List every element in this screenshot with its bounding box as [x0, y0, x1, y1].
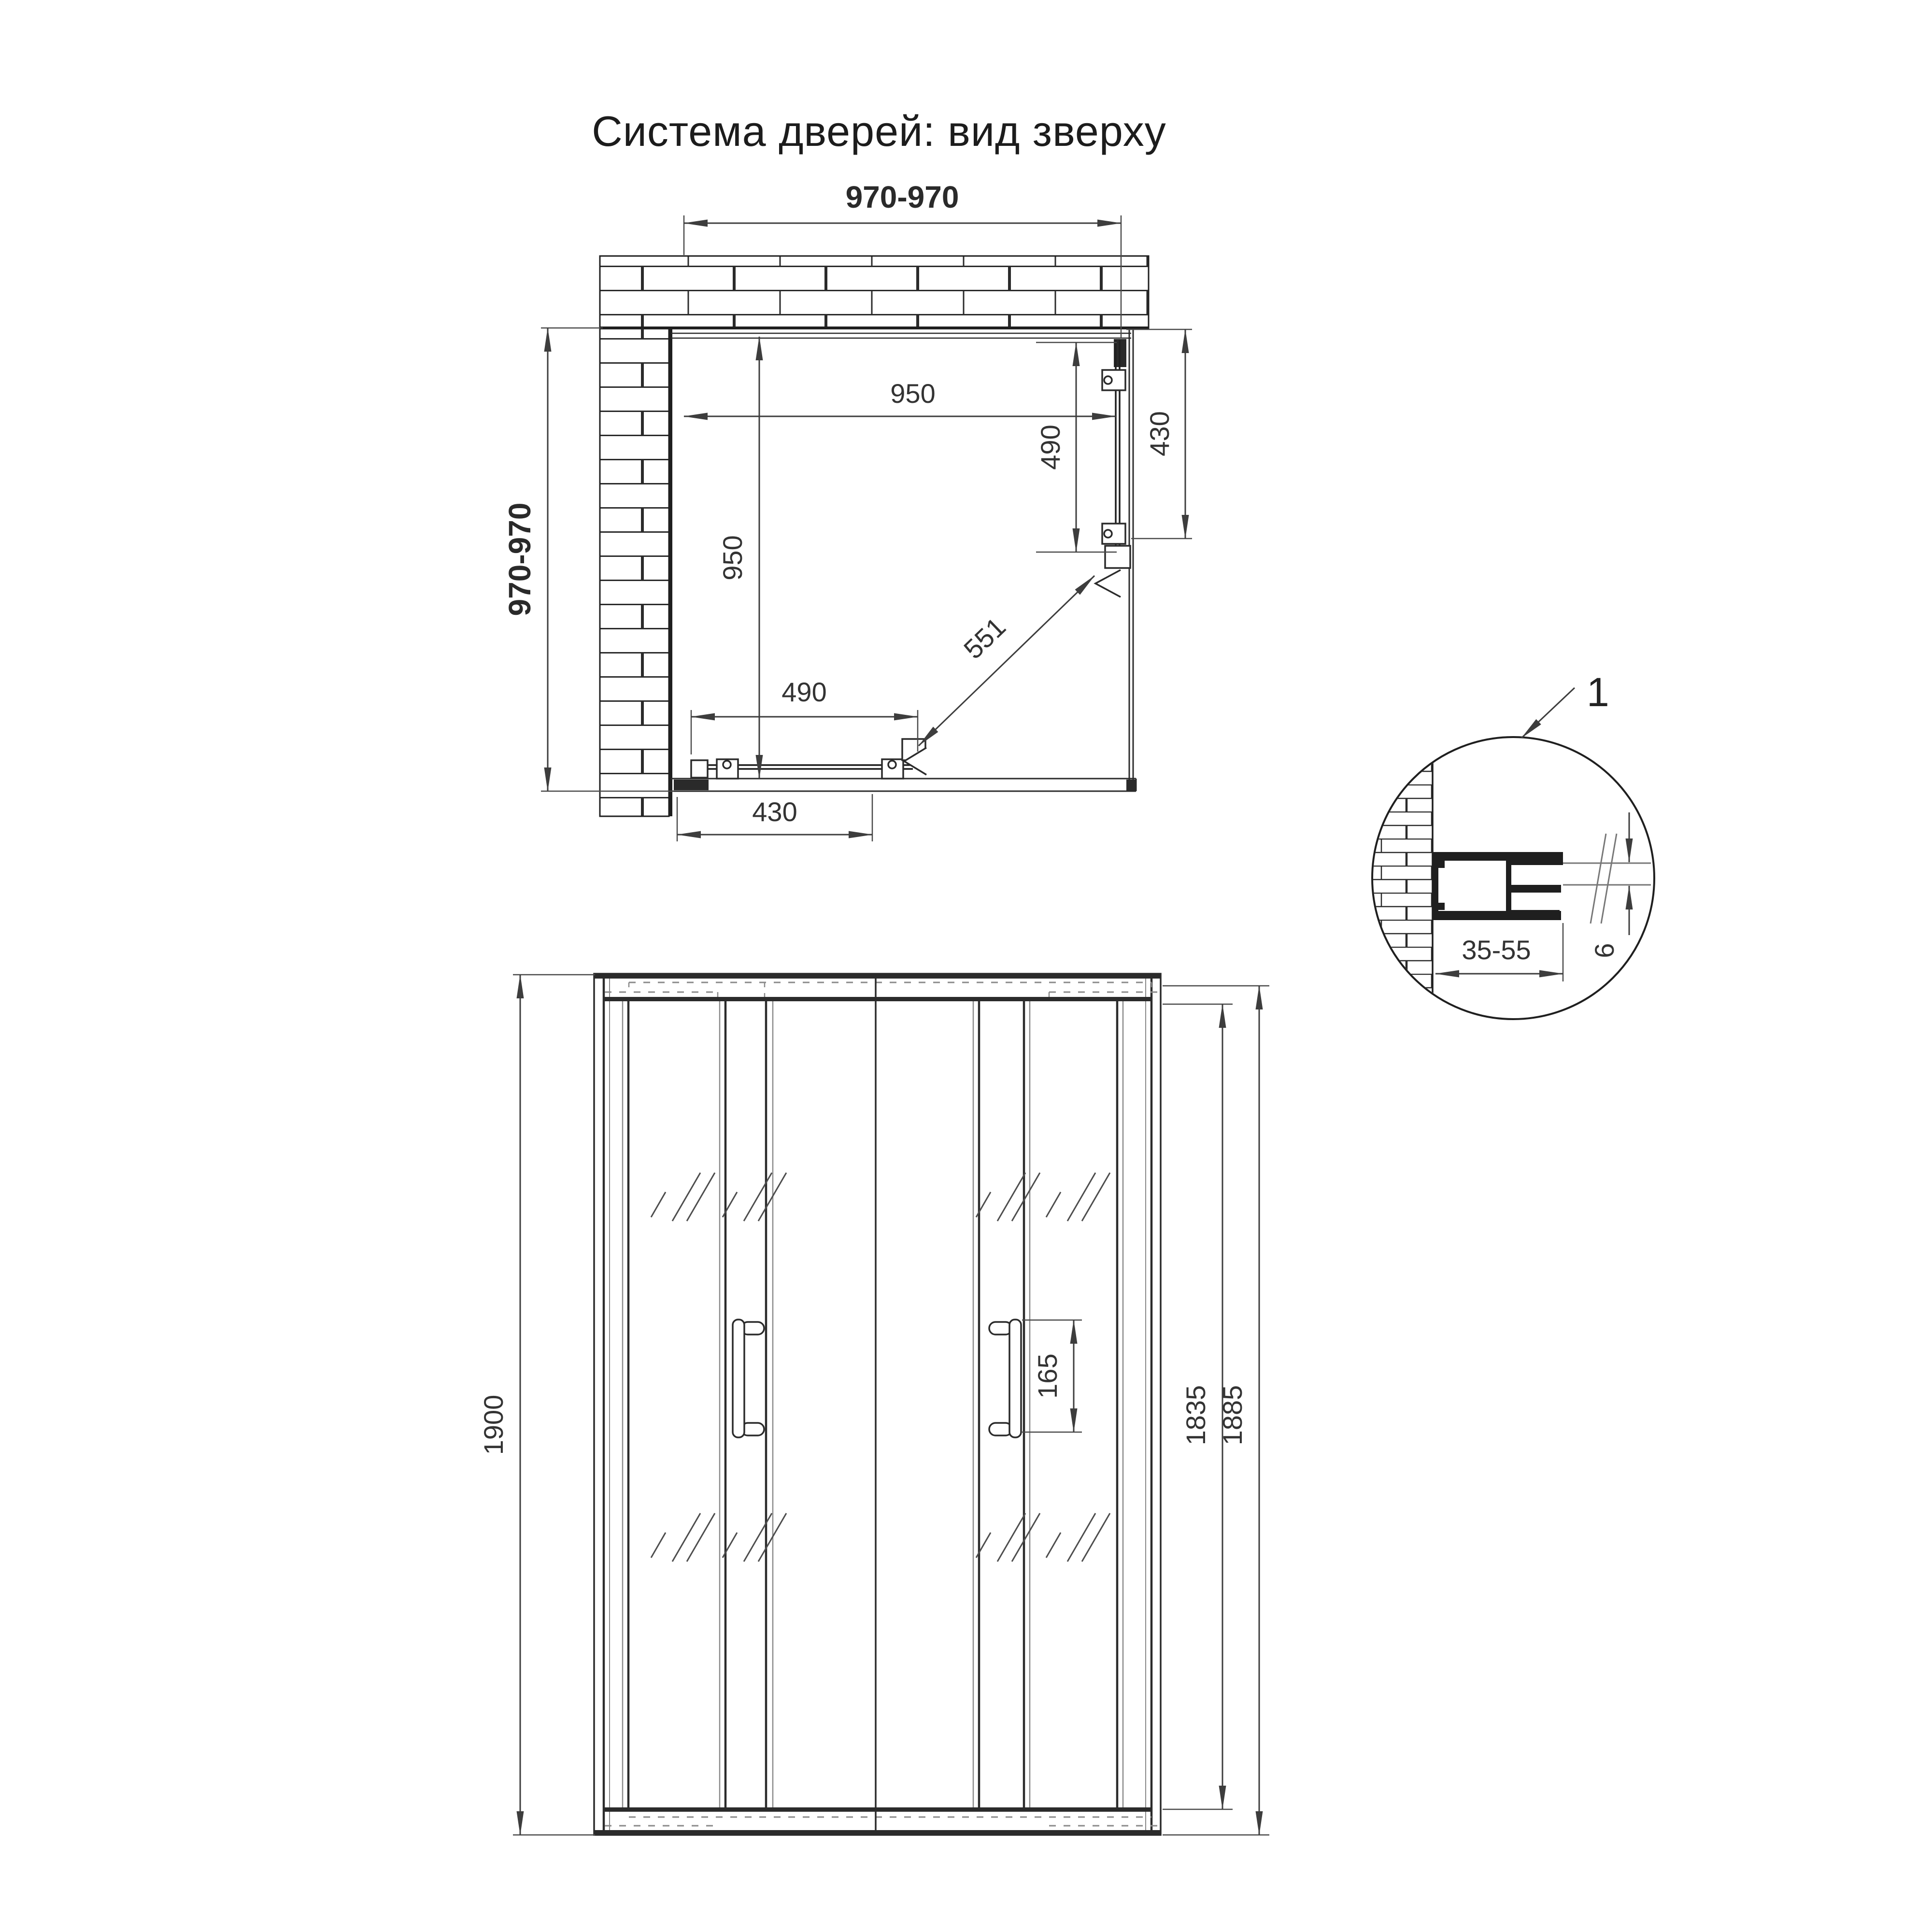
dim-plan-diagonal-entry: 551	[919, 576, 1094, 746]
page-title: Система дверей: вид зверху	[592, 107, 1166, 155]
front-bottom-track	[604, 1807, 1158, 1830]
dimension-label: 551	[958, 611, 1011, 665]
roller-wheel-icon	[1104, 376, 1112, 384]
dimension-label: 1885	[1217, 1385, 1248, 1446]
dimension-label: 950	[717, 535, 748, 580]
door-end-clamp	[691, 760, 708, 778]
profile-hook	[1438, 861, 1445, 868]
dimension-label: 165	[1032, 1353, 1063, 1398]
dimension-label: 35-55	[1462, 935, 1531, 965]
front-view: 165 1900 1835 1885	[478, 974, 1269, 1835]
plan-front-sliding-door	[691, 739, 926, 779]
dimension-label: 970-970	[502, 503, 537, 616]
profile-hook	[1438, 903, 1445, 910]
dimension-label: 490	[1035, 425, 1065, 469]
detail-view: 1 35-55	[1362, 669, 1654, 1024]
glass-hatch-icon	[723, 1173, 786, 1221]
left-door-handle	[733, 1320, 764, 1437]
dimension-label: 1900	[478, 1395, 509, 1455]
rail-web	[1506, 861, 1511, 918]
plan-view: 970-970 970-970 950 950 490	[502, 180, 1192, 841]
dim-front-handle-spacing: 165	[1022, 1320, 1082, 1432]
dimension-label: 1835	[1180, 1385, 1211, 1446]
glass-hatch-icon	[723, 1513, 786, 1562]
glass-hatch-icon	[651, 1513, 715, 1562]
dim-front-total-height: 1900	[478, 975, 595, 1835]
roller-wheel-icon	[1104, 530, 1112, 538]
dimension-label: 970-970	[846, 180, 959, 214]
roller-wheel-icon	[723, 761, 731, 768]
door-end-clip	[1105, 546, 1130, 568]
dimension-line	[919, 576, 1094, 746]
dim-front-frame-height: 1885	[1163, 986, 1269, 1835]
plan-left-brick-wall	[600, 328, 671, 816]
brick-wall-top	[600, 256, 1149, 328]
rail-bottom-bar	[1511, 910, 1560, 916]
plan-bottom-track	[671, 779, 1136, 791]
plan-top-brick-wall	[600, 256, 1149, 328]
dim-plan-side-door-travel: 430	[1126, 329, 1192, 539]
dimension-label: 6	[1589, 943, 1619, 958]
front-top-rail-bar	[604, 997, 1151, 1001]
callout-label: 1	[1587, 669, 1609, 715]
glass-hatch-icon	[1046, 1173, 1110, 1221]
profile-top-arm	[1433, 852, 1563, 861]
dimension-label: 950	[890, 378, 935, 409]
rail-top-bar	[1506, 861, 1563, 865]
dim-plan-front-door-travel: 430	[677, 794, 872, 841]
front-top-edge-bar	[594, 974, 1161, 979]
track-corner-piece	[1126, 780, 1136, 791]
front-bottom-edge-bar	[594, 1830, 1161, 1835]
door-edge-wedge	[1095, 570, 1121, 597]
front-top-track	[604, 979, 1158, 1001]
handle-bar	[1009, 1320, 1021, 1437]
dimension-label: 430	[1144, 411, 1175, 456]
handle-bracket	[989, 1322, 1012, 1335]
track-wall-clamp	[674, 780, 709, 790]
dim-plan-front-door-glass: 490	[691, 677, 918, 754]
dimension-label: 430	[752, 796, 797, 827]
plan-side-sliding-door	[1095, 339, 1130, 597]
rail-middle-arm	[1511, 885, 1561, 893]
roller-wheel-icon	[888, 761, 896, 768]
dimension-label: 490	[781, 677, 826, 707]
handle-bar	[733, 1320, 744, 1437]
plan-top-profile	[671, 333, 1131, 338]
profile-web	[1433, 852, 1438, 920]
glass-hatch-icon	[1046, 1513, 1110, 1562]
glass-hatch-icon	[651, 1173, 715, 1221]
right-door-handle	[989, 1320, 1021, 1437]
dim-plan-opening-depth: 950	[717, 337, 759, 779]
front-outer-frame	[594, 974, 1161, 1835]
dim-plan-opening-width: 950	[684, 378, 1116, 416]
front-bottom-rail-bar	[604, 1807, 1151, 1812]
callout-leader	[1521, 688, 1575, 738]
drawing-canvas: Система дверей: вид зверху	[0, 0, 1932, 1932]
front-panel-edges	[623, 1001, 1123, 1807]
handle-bracket	[989, 1423, 1012, 1435]
brick-wall-left	[600, 328, 669, 816]
technical-drawing-page: Система дверей: вид зверху	[0, 0, 1932, 1932]
